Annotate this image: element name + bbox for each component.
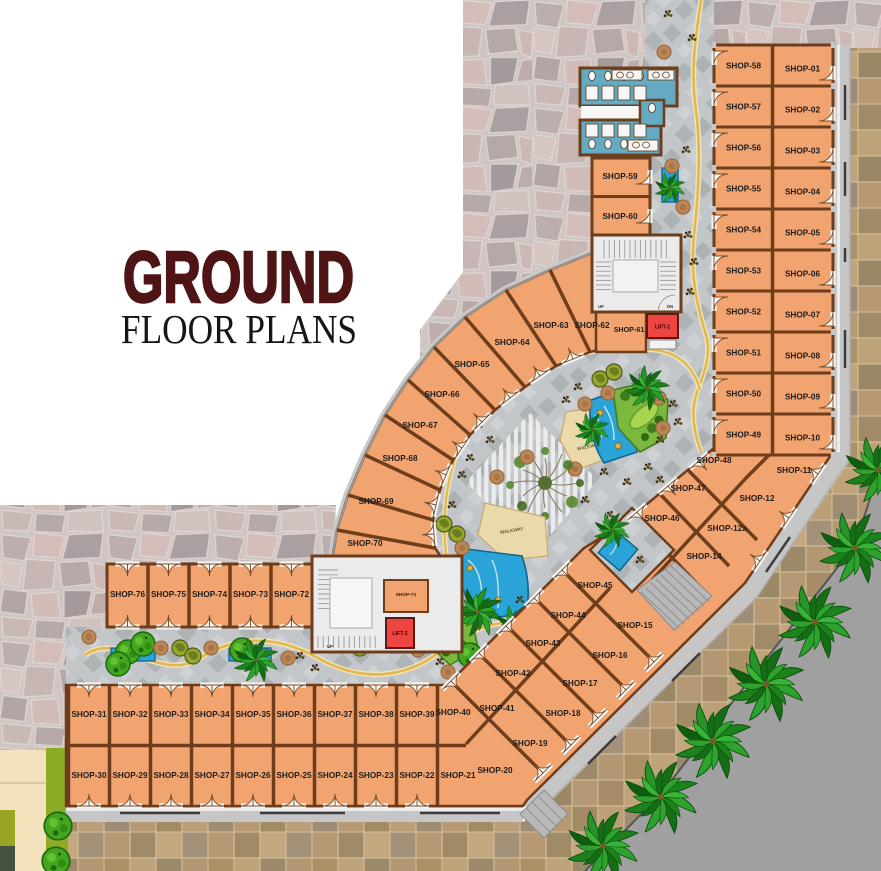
svg-text:SHOP-46: SHOP-46 [644, 514, 679, 523]
svg-text:SHOP-06: SHOP-06 [785, 270, 820, 279]
svg-text:SHOP-19: SHOP-19 [512, 739, 547, 748]
svg-text:SHOP-65: SHOP-65 [454, 360, 489, 369]
svg-text:SHOP-60: SHOP-60 [602, 212, 637, 221]
svg-text:SHOP-20: SHOP-20 [477, 766, 512, 775]
svg-text:SHOP-11: SHOP-11 [777, 466, 812, 475]
svg-text:SHOP-38: SHOP-38 [358, 710, 393, 719]
svg-text:SHOP-05: SHOP-05 [785, 229, 820, 238]
svg-text:SHOP-74: SHOP-74 [192, 590, 227, 599]
svg-text:SHOP-24: SHOP-24 [317, 771, 352, 780]
svg-text:SHOP-28: SHOP-28 [153, 771, 188, 780]
svg-text:SHOP-42: SHOP-42 [495, 669, 530, 678]
svg-text:SHOP-34: SHOP-34 [194, 710, 229, 719]
svg-text:SHOP-70: SHOP-70 [347, 539, 382, 548]
svg-text:DN: DN [667, 304, 673, 309]
svg-text:LIFT-2: LIFT-2 [392, 631, 407, 637]
svg-text:SHOP-56: SHOP-56 [726, 144, 761, 153]
svg-text:SHOP-53: SHOP-53 [726, 267, 761, 276]
svg-text:SHOP-01: SHOP-01 [785, 65, 820, 74]
svg-text:SHOP-68: SHOP-68 [382, 454, 417, 463]
svg-text:SHOP-76: SHOP-76 [110, 590, 145, 599]
svg-text:SHOP-30: SHOP-30 [71, 771, 106, 780]
svg-text:SHOP-47: SHOP-47 [670, 484, 705, 493]
svg-text:LIFT-1: LIFT-1 [655, 325, 670, 331]
svg-text:SHOP-48: SHOP-48 [696, 456, 731, 465]
svg-text:SHOP-07: SHOP-07 [785, 311, 820, 320]
svg-text:SHOP-40: SHOP-40 [435, 708, 470, 717]
svg-text:UP: UP [598, 304, 604, 309]
svg-text:SHOP-09: SHOP-09 [785, 393, 820, 402]
svg-text:SHOP-36: SHOP-36 [276, 710, 311, 719]
svg-text:SHOP-51: SHOP-51 [726, 349, 761, 358]
svg-text:SHOP-15: SHOP-15 [617, 621, 652, 630]
svg-text:SHOP-57: SHOP-57 [726, 103, 761, 112]
svg-text:SHOP-32: SHOP-32 [112, 710, 147, 719]
svg-text:SHOP-02: SHOP-02 [785, 106, 820, 115]
svg-text:SHOP-44: SHOP-44 [550, 611, 585, 620]
svg-text:SHOP-25: SHOP-25 [276, 771, 311, 780]
svg-text:SHOP-41: SHOP-41 [479, 704, 514, 713]
svg-text:SHOP-26: SHOP-26 [235, 771, 270, 780]
svg-text:SHOP-58: SHOP-58 [726, 62, 761, 71]
svg-text:SHOP-22: SHOP-22 [399, 771, 434, 780]
svg-text:SHOP-21: SHOP-21 [440, 771, 475, 780]
svg-text:SHOP-63: SHOP-63 [533, 321, 568, 330]
svg-text:SHOP-61: SHOP-61 [614, 325, 645, 334]
svg-text:UP: UP [327, 644, 333, 649]
svg-text:SHOP-23: SHOP-23 [358, 771, 393, 780]
svg-text:FLOOR PLANS: FLOOR PLANS [121, 306, 357, 352]
svg-text:SHOP-12: SHOP-12 [739, 494, 774, 503]
svg-text:SHOP-17: SHOP-17 [562, 679, 597, 688]
svg-text:SHOP-10: SHOP-10 [785, 434, 820, 443]
svg-text:SHOP-71: SHOP-71 [396, 592, 417, 598]
svg-text:SHOP-18: SHOP-18 [545, 709, 580, 718]
svg-text:SHOP-67: SHOP-67 [402, 421, 437, 430]
svg-text:SHOP-55: SHOP-55 [726, 185, 761, 194]
svg-text:SHOP-49: SHOP-49 [726, 431, 761, 440]
svg-text:SHOP-14: SHOP-14 [686, 552, 721, 561]
svg-text:SHOP-37: SHOP-37 [317, 710, 352, 719]
svg-text:SHOP-08: SHOP-08 [785, 352, 820, 361]
svg-text:SHOP-54: SHOP-54 [726, 226, 761, 235]
svg-text:SHOP-52: SHOP-52 [726, 308, 761, 317]
svg-text:SHOP-29: SHOP-29 [112, 771, 147, 780]
svg-text:SHOP-66: SHOP-66 [424, 390, 459, 399]
svg-text:SHOP-64: SHOP-64 [494, 338, 529, 347]
svg-text:SHOP-75: SHOP-75 [151, 590, 186, 599]
svg-text:SHOP-35: SHOP-35 [235, 710, 270, 719]
svg-text:SHOP-72: SHOP-72 [274, 590, 309, 599]
svg-text:SHOP-59: SHOP-59 [602, 172, 637, 181]
svg-text:SHOP-73: SHOP-73 [233, 590, 268, 599]
svg-text:SHOP-16: SHOP-16 [592, 651, 627, 660]
svg-text:SHOP-50: SHOP-50 [726, 390, 761, 399]
svg-text:SHOP-43: SHOP-43 [525, 639, 560, 648]
svg-text:SHOP-04: SHOP-04 [785, 188, 820, 197]
svg-text:SHOP-03: SHOP-03 [785, 147, 820, 156]
svg-text:SHOP-69: SHOP-69 [358, 497, 393, 506]
svg-text:SHOP-62: SHOP-62 [574, 321, 609, 330]
svg-text:SHOP-12a: SHOP-12a [707, 524, 747, 533]
svg-text:SHOP-45: SHOP-45 [577, 581, 612, 590]
svg-text:SHOP-27: SHOP-27 [194, 771, 229, 780]
svg-text:SHOP-39: SHOP-39 [399, 710, 434, 719]
svg-text:SHOP-31: SHOP-31 [71, 710, 106, 719]
svg-text:SHOP-33: SHOP-33 [153, 710, 188, 719]
